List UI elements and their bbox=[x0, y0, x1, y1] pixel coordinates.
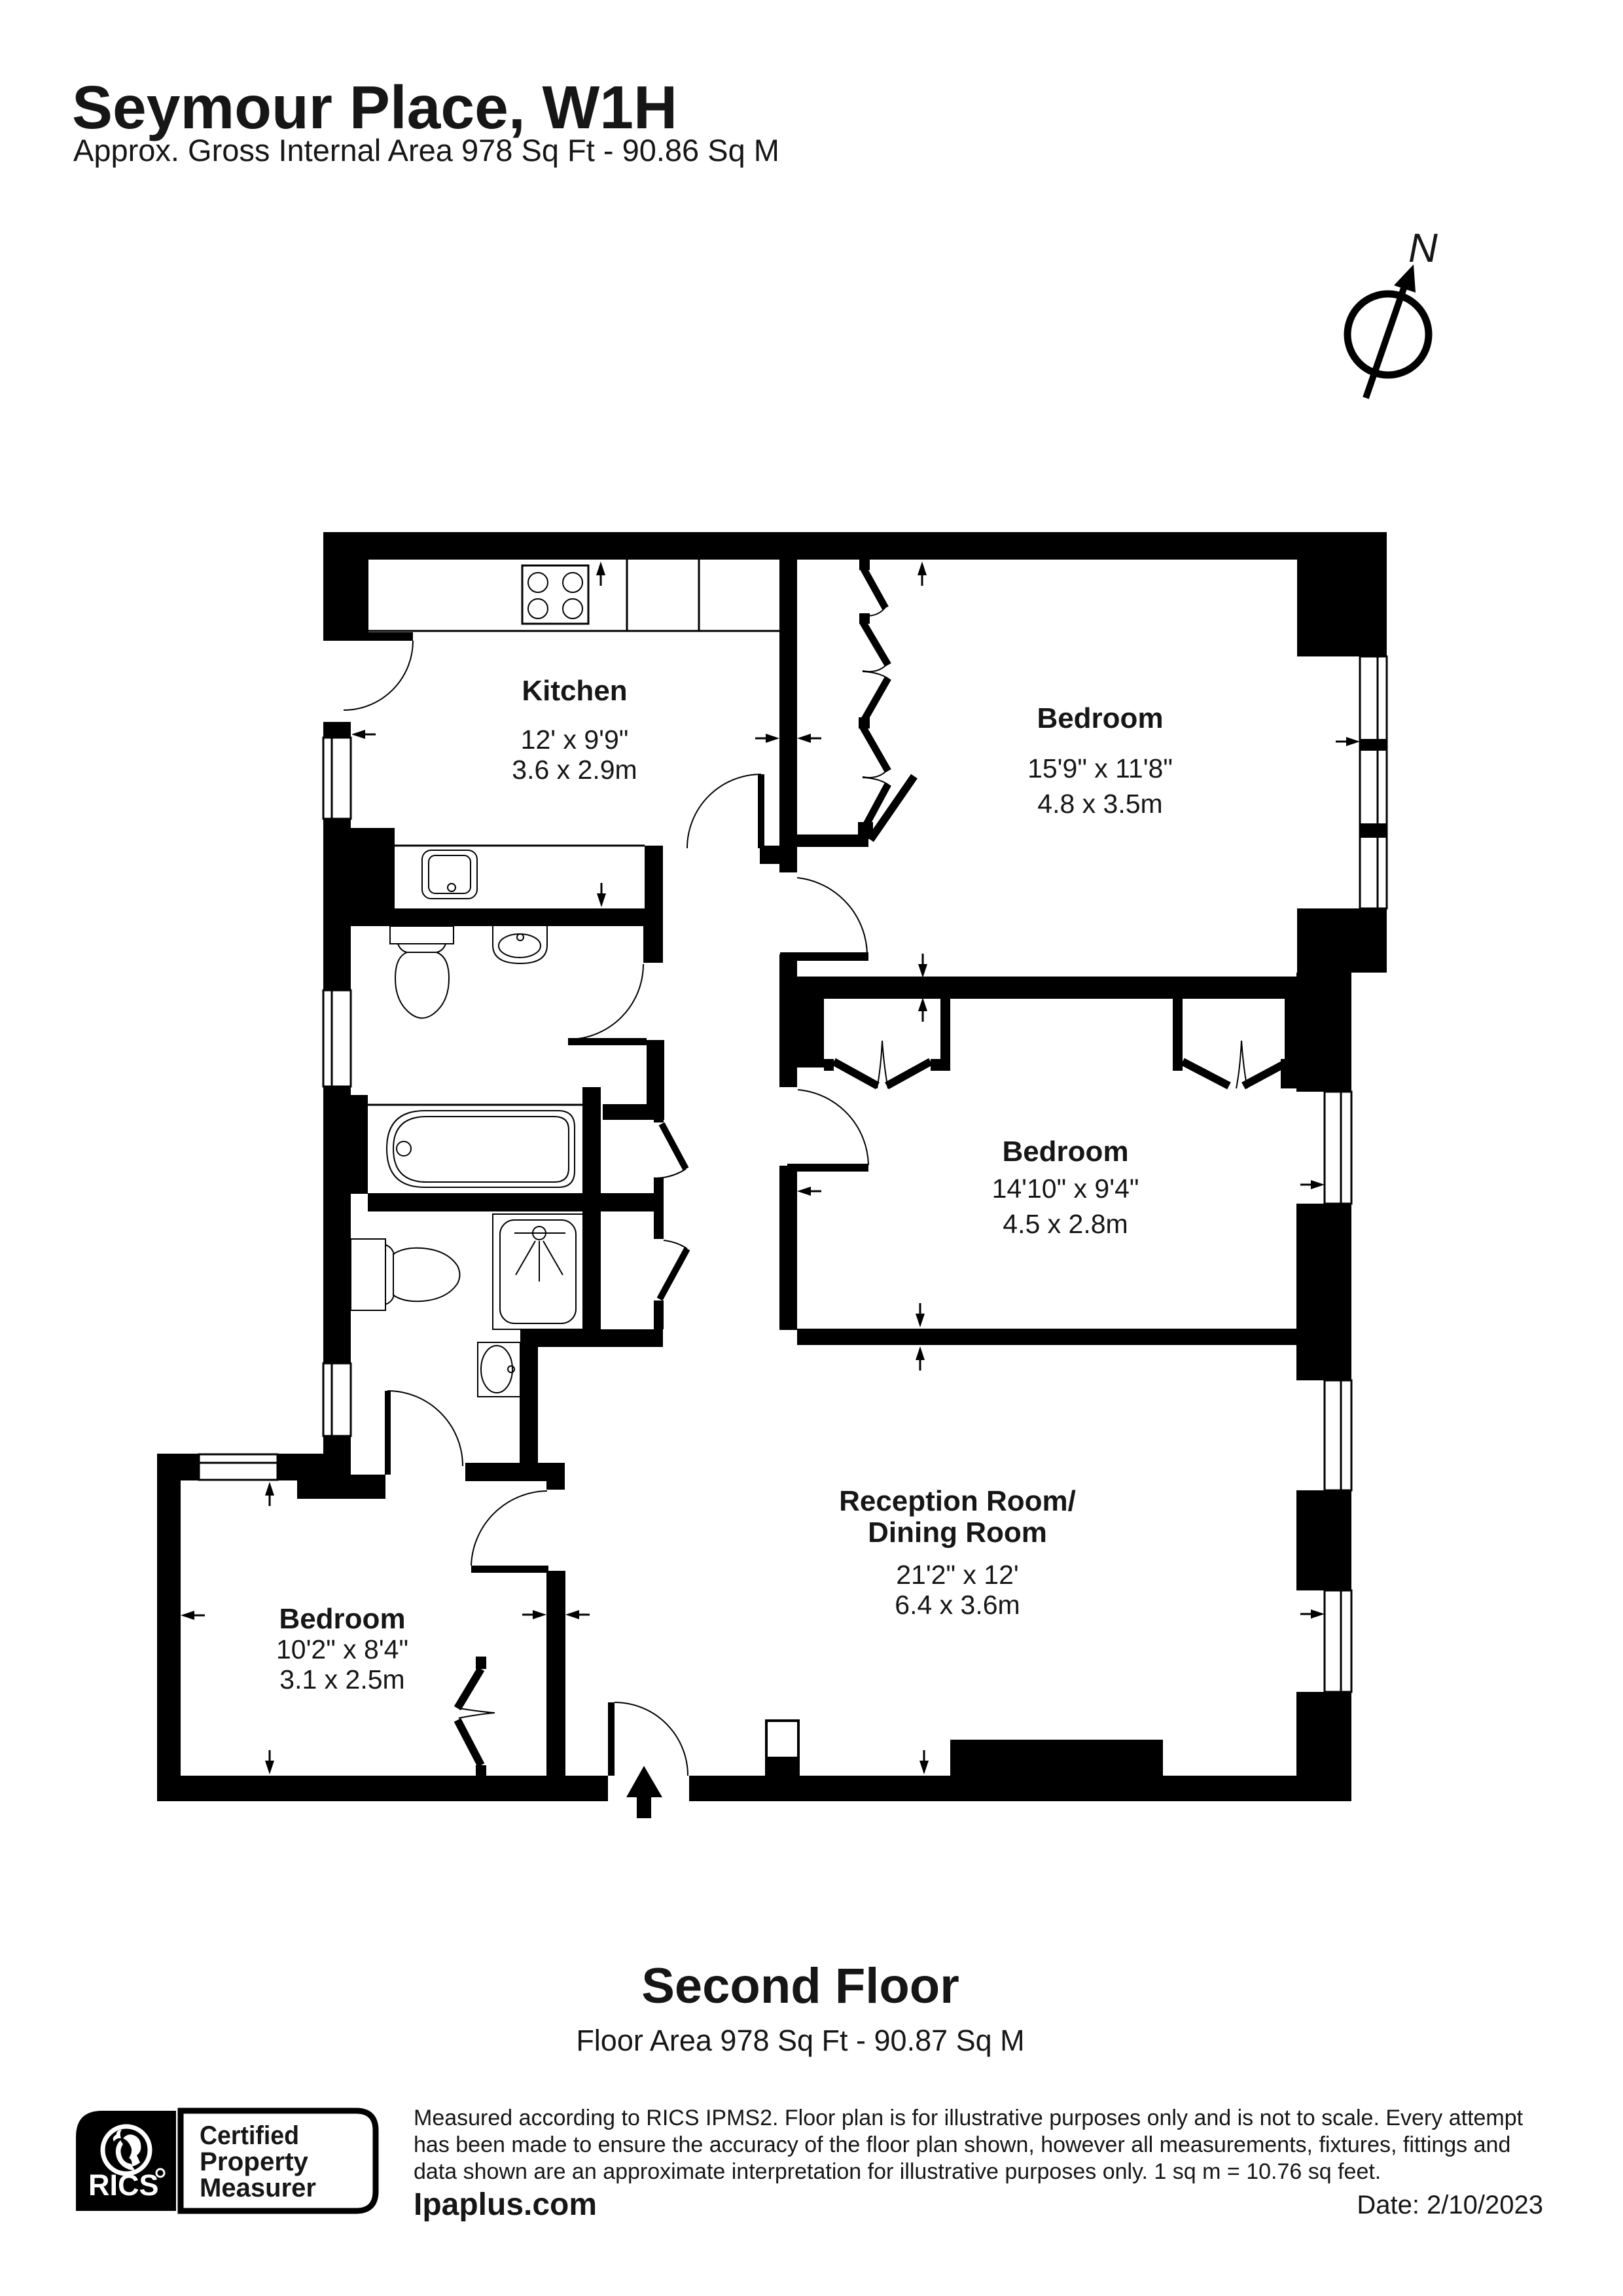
svg-text:RICS: RICS bbox=[88, 2168, 159, 2202]
svg-text:12' x 9'9": 12' x 9'9" bbox=[521, 725, 629, 755]
svg-text:Measured according to RICS IPM: Measured according to RICS IPMS2. Floor … bbox=[414, 2106, 1524, 2130]
svg-text:Date: 2/10/2023: Date: 2/10/2023 bbox=[1357, 2191, 1543, 2219]
svg-text:4.5 x 2.8m: 4.5 x 2.8m bbox=[1003, 1209, 1128, 1239]
svg-text:Measurer: Measurer bbox=[200, 2174, 316, 2202]
svg-text:Certified: Certified bbox=[200, 2121, 299, 2150]
svg-text:Bedroom: Bedroom bbox=[1037, 702, 1163, 734]
svg-text:data shown are an approximate: data shown are an approximate interpreta… bbox=[414, 2159, 1381, 2184]
svg-text:Bedroom: Bedroom bbox=[279, 1603, 405, 1635]
svg-text:N: N bbox=[1408, 226, 1438, 271]
svg-text:Second Floor: Second Floor bbox=[641, 1958, 959, 2014]
svg-text:3.1 x 2.5m: 3.1 x 2.5m bbox=[279, 1664, 404, 1695]
svg-text:6.4 x 3.6m: 6.4 x 3.6m bbox=[895, 1590, 1020, 1620]
svg-text:Kitchen: Kitchen bbox=[522, 675, 627, 707]
svg-text:Seymour Place, W1H: Seymour Place, W1H bbox=[72, 73, 677, 141]
svg-text:Reception Room/: Reception Room/ bbox=[839, 1485, 1076, 1517]
svg-text:3.6 x 2.9m: 3.6 x 2.9m bbox=[512, 755, 637, 785]
svg-text:Dining Room: Dining Room bbox=[868, 1516, 1047, 1549]
svg-text:Approx. Gross Internal Area 97: Approx. Gross Internal Area 978 Sq Ft - … bbox=[73, 133, 779, 168]
svg-text:Ipaplus.com: Ipaplus.com bbox=[414, 2187, 597, 2222]
svg-text:21'2" x 12': 21'2" x 12' bbox=[896, 1560, 1019, 1590]
svg-text:Bedroom: Bedroom bbox=[1002, 1136, 1128, 1168]
svg-text:Floor Area 978 Sq Ft - 90.87 S: Floor Area 978 Sq Ft - 90.87 Sq M bbox=[576, 2024, 1024, 2057]
svg-text:14'10" x 9'4": 14'10" x 9'4" bbox=[992, 1174, 1139, 1204]
svg-text:Property: Property bbox=[200, 2147, 309, 2176]
svg-text:10'2" x 8'4": 10'2" x 8'4" bbox=[276, 1634, 408, 1664]
svg-text:15'9" x 11'8": 15'9" x 11'8" bbox=[1027, 753, 1173, 783]
svg-text:4.8 x 3.5m: 4.8 x 3.5m bbox=[1037, 789, 1162, 819]
svg-text:has been made to ensure the ac: has been made to ensure the accuracy of … bbox=[414, 2132, 1510, 2157]
